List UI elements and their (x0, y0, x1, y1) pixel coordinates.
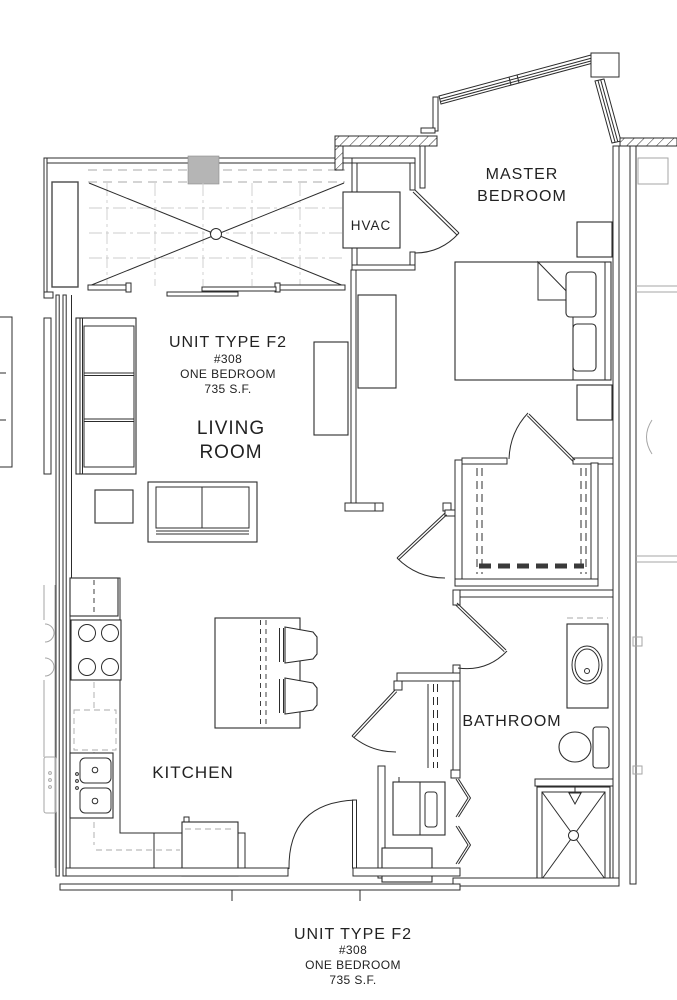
bathroom-label: BATHROOM (462, 713, 561, 730)
unit-number: #308 (339, 943, 367, 957)
dresser (358, 295, 396, 388)
unit-type: ONE BEDROOM (180, 367, 276, 381)
bay-window-1 (439, 55, 593, 104)
nightstand (577, 385, 612, 420)
deck-planter (52, 182, 78, 287)
closet-rod (428, 684, 438, 768)
floor-plan: HVAC MASTER BEDROOM (0, 0, 677, 1000)
bathroom-south-wall (453, 878, 619, 886)
dryer (382, 848, 432, 882)
divider-wall (351, 270, 356, 510)
closet-door (509, 413, 575, 462)
dishwasher (182, 817, 238, 876)
toilet (559, 727, 609, 768)
deck-x-brace (89, 183, 344, 286)
shower (537, 787, 610, 884)
tv-console (314, 342, 348, 435)
bifold-doors (451, 770, 471, 864)
corridor-wall (60, 884, 460, 890)
unit-title: UNIT TYPE F2 (169, 334, 287, 351)
bed (455, 262, 611, 380)
bedroom-hall-door (397, 513, 447, 578)
dining-chair (280, 627, 318, 663)
unit-area: 735 S.F. (204, 382, 251, 396)
living-room: UNIT TYPE F2 #308 ONE BEDROOM 735 S.F. L… (76, 270, 356, 542)
unit-type: ONE BEDROOM (305, 958, 401, 972)
shaft-shade (188, 156, 219, 184)
pillow (566, 272, 596, 317)
master-bedroom-label-line2: BEDROOM (477, 188, 567, 205)
party-wall-left (56, 295, 72, 876)
hvac-door (413, 190, 459, 253)
kitchen-label: KITCHEN (152, 763, 234, 782)
stove (71, 620, 121, 680)
neighbor-unit-left (0, 317, 56, 868)
bay-column (591, 53, 619, 77)
sliding-door (167, 287, 276, 296)
closet-shelving (477, 468, 586, 574)
pillow (573, 324, 596, 371)
unit-number: #308 (214, 352, 242, 366)
entry-door (289, 800, 357, 869)
living-room-label-line1: LIVING (197, 418, 265, 439)
bay-window-2 (595, 79, 621, 143)
hall-door (352, 690, 397, 752)
hallway (345, 503, 460, 578)
kitchen: KITCHEN (70, 578, 317, 876)
master-bedroom-label-line1: MASTER (486, 166, 559, 183)
party-wall-right (613, 138, 677, 884)
dining-chair (280, 678, 318, 714)
unit-title-block-top: UNIT TYPE F2 #308 ONE BEDROOM 735 S.F. (169, 334, 287, 396)
floor-plan-page: HVAC MASTER BEDROOM (0, 0, 677, 1000)
sofa (76, 318, 136, 474)
unit-title-block-bottom: UNIT TYPE F2 #308 ONE BEDROOM 735 S.F. (294, 926, 412, 987)
existing-wall-hatch (335, 136, 437, 146)
unit-area: 735 S.F. (329, 973, 376, 987)
nightstand (577, 222, 612, 257)
neighbor-unit-right (633, 158, 677, 774)
loveseat (148, 482, 257, 542)
bathroom-door (455, 603, 507, 669)
side-table (95, 490, 133, 523)
unit-title: UNIT TYPE F2 (294, 926, 412, 943)
walk-in-closet (455, 413, 613, 586)
kitchen-sink (70, 753, 113, 818)
deck-area (44, 156, 352, 298)
washer (393, 777, 445, 835)
living-room-label-line2: ROOM (199, 442, 262, 463)
bathroom: BATHROOM (453, 590, 613, 884)
hvac-label: HVAC (351, 218, 392, 233)
vanity (567, 618, 608, 708)
hvac-closet: HVAC (335, 136, 459, 270)
